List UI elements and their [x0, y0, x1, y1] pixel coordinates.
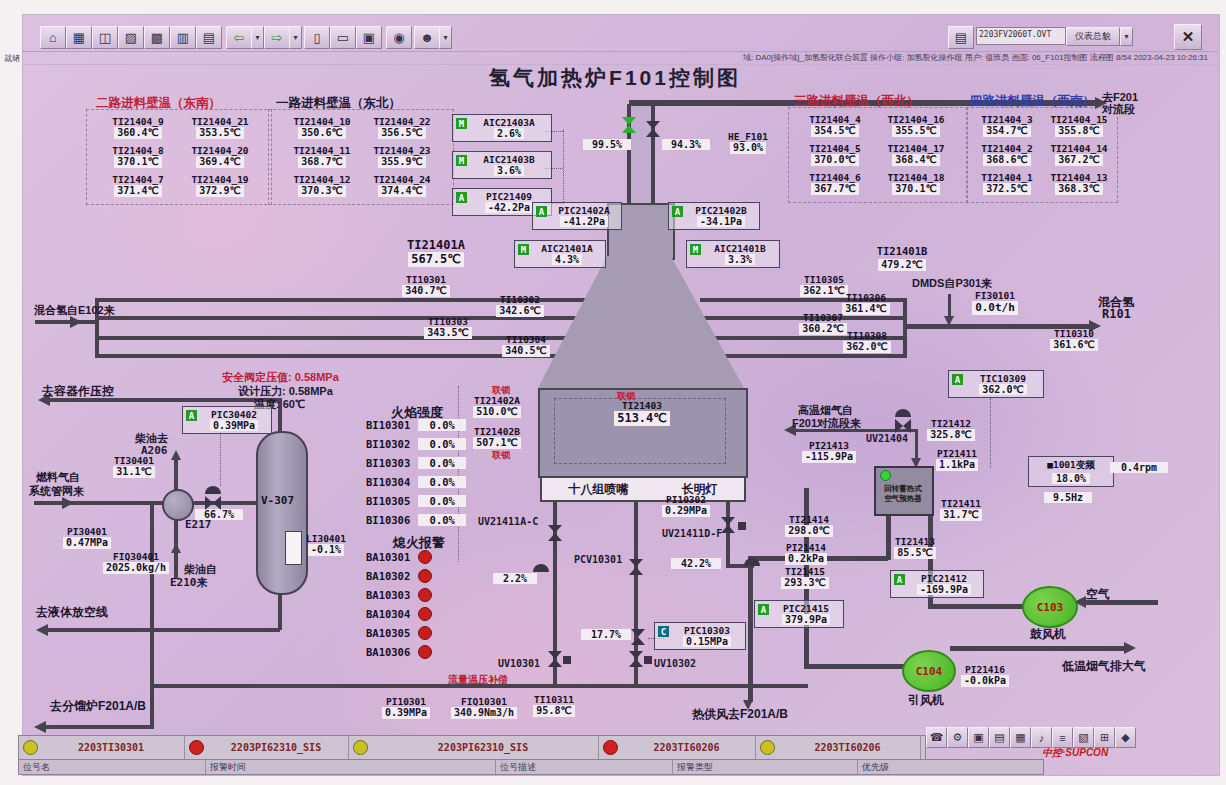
controller-PIC10303[interactable]: CPIC103030.15MPa	[654, 622, 746, 650]
auto-mode-icon: A	[952, 374, 963, 385]
cascade-mode-icon: C	[658, 626, 669, 637]
valve-solenoid	[563, 656, 571, 664]
instrument-PI21414[interactable]: PI214140.2kPa	[776, 542, 836, 565]
instrument-TI10302[interactable]: TI10302342.6℃	[486, 294, 554, 317]
flame-row-BI10305[interactable]: BI103050.0%	[366, 495, 466, 507]
valve-UV21411D-F[interactable]	[721, 517, 735, 533]
uv21404-label: UV21404	[866, 433, 908, 444]
fuel-gas-label-2: 系统管网来	[29, 484, 84, 499]
instrument-TI21404_18[interactable]: TI21404_18370.1℃	[874, 172, 958, 195]
instrument-PI10302[interactable]: PI103020.29MPa	[650, 494, 722, 517]
valve-solenoid	[738, 522, 746, 530]
book-icon[interactable]: ▣	[356, 26, 382, 49]
alarm-indicator	[418, 569, 432, 583]
alarm-level-icon	[353, 740, 368, 755]
panel-dropdown-icon[interactable]: ▾	[1120, 27, 1133, 46]
list-icon[interactable]: ≡	[1052, 727, 1073, 748]
instrument-FIQ30401[interactable]: FIQ304012025.0kg/h	[88, 551, 184, 574]
branch-pipe	[44, 725, 152, 729]
instrument-TI21404_4[interactable]: TI21404_4354.5℃	[796, 114, 874, 137]
uv21411df-label: UV21411D-F	[662, 528, 722, 539]
flue-to-c104	[804, 664, 910, 669]
instrument-TI21404_16[interactable]: TI21404_16355.5℃	[874, 114, 958, 137]
instrument-TI21404_10[interactable]: TI21404_10350.6℃	[280, 116, 364, 139]
grid-icon[interactable]: ⊞	[1094, 727, 1115, 748]
instrument-TI21404_20[interactable]: TI21404_20369.4℃	[178, 145, 262, 168]
group1-header: 一路进料壁温（东北）	[276, 95, 401, 112]
drain-label: 去液体放空线	[36, 604, 108, 621]
interlock-label: 联锁	[492, 449, 510, 462]
valve-UV21404[interactable]	[895, 419, 911, 433]
blower-label: 鼓风机	[1030, 626, 1066, 643]
r101-label: R101	[1102, 307, 1131, 321]
controller-PIC21412[interactable]: APIC21412-169.9Pa	[890, 570, 984, 598]
instrument-TI21404_17[interactable]: TI21404_17368.4℃	[874, 143, 958, 166]
alarm-level-icon	[23, 740, 38, 755]
hot-flue-drop	[915, 429, 918, 459]
instrument-TI10304[interactable]: TI10304340.5℃	[492, 334, 560, 357]
controller-PIC30402[interactable]: APIC304020.39MPa	[182, 406, 272, 434]
instrument-FI30101[interactable]: FI301010.0t/h	[955, 290, 1035, 315]
page-next-icon[interactable]: ▭	[330, 26, 356, 49]
alarm-indicator	[418, 626, 432, 640]
flame-row-BI10301[interactable]: BI103010.0%	[366, 419, 466, 431]
instrument-TI21404_22[interactable]: TI21404_22356.5℃	[360, 116, 444, 139]
media-icon[interactable]: ♪	[1031, 727, 1052, 748]
ready-status: 就绪	[4, 53, 20, 64]
instrument-TI21404_5[interactable]: TI21404_5370.0℃	[796, 143, 874, 166]
controller-AIC21403A[interactable]: MAIC21403A2.6%	[452, 114, 552, 142]
detail-icon[interactable]: ▥	[170, 26, 196, 49]
alarm-row-BA10303[interactable]: BA10303	[366, 588, 432, 602]
dmds-label: DMDS自P301来	[912, 276, 992, 291]
col-description: 位号描述	[496, 760, 673, 774]
instrument-TI21404_7[interactable]: TI21404_7371.4℃	[98, 174, 178, 197]
alarm-level-icon	[189, 740, 204, 755]
instrument-TI30401[interactable]: TI3040131.1℃	[104, 455, 164, 478]
group2-header: 二路进料壁温（东南）	[96, 95, 221, 112]
valve-UV21411A-C[interactable]	[548, 525, 562, 541]
damper-right-output: 94.3%	[662, 139, 710, 150]
screen-icon[interactable]: ▣	[968, 727, 989, 748]
e210-label: E210来	[170, 575, 208, 590]
back-icon[interactable]: ⇦	[226, 26, 252, 49]
window-icon[interactable]: ◫	[92, 26, 118, 49]
col-tagname: 位号名	[19, 760, 206, 774]
burner-label: 十八组喷嘴	[569, 481, 629, 498]
preheater-label: 回转蓄热式空气预热器	[874, 484, 932, 504]
instrument-TI21402B[interactable]: TI21402B507.1℃	[462, 426, 532, 449]
instrument-TI21401B[interactable]: TI21401B479.2℃	[866, 245, 938, 271]
document-field[interactable]: 2203FV2060T.OVT	[976, 27, 1066, 45]
valve-PCV10301[interactable]	[629, 559, 643, 575]
instrument-PI21411[interactable]: PI214111.1kPa	[928, 448, 986, 471]
trend-icon[interactable]: ▨	[118, 26, 144, 49]
pilot-valve[interactable]	[631, 629, 645, 645]
alarm-cell-1[interactable]: 2203TI30301	[19, 736, 185, 759]
controller-AIC21401A[interactable]: MAIC21401A4.3%	[514, 240, 606, 268]
controller-AIC21401B[interactable]: MAIC21401B3.3%	[686, 240, 780, 268]
auto-mode-icon: A	[536, 206, 547, 217]
fuel-control-valve[interactable]	[205, 496, 221, 510]
damper-left-output: 99.5%	[583, 139, 631, 150]
dashed-link	[458, 386, 459, 562]
air-duct-horiz	[928, 604, 1026, 609]
feed-pipe	[35, 320, 97, 324]
alarm-row-BA10305[interactable]: BA10305	[366, 626, 432, 640]
fuel-valve-output: 66.7%	[195, 509, 243, 520]
alarm-banner: 2203TI30301 2203PI62310_SIS 2203PI62310_…	[18, 735, 926, 760]
controller-PIC21402B[interactable]: APIC21402B-34.1Pa	[668, 202, 760, 230]
auto-mode-icon: A	[456, 192, 467, 203]
instrument-HE_F101[interactable]: HE_F10193.0%	[712, 131, 784, 154]
instrument-TI10301[interactable]: TI10301340.7℃	[392, 274, 460, 297]
vfd-frequency: 9.5Hz	[1044, 492, 1092, 503]
page-title: 氢气加热炉F101控制图	[420, 64, 810, 92]
manual-mode-icon: M	[518, 244, 529, 255]
dashed-link	[220, 432, 221, 486]
instrument-TI21404_15[interactable]: TI21404_15355.8℃	[1042, 114, 1116, 137]
drain-riser	[278, 589, 282, 630]
auto-mode-icon: A	[186, 410, 197, 421]
user-menu-icon[interactable]: ▾	[439, 26, 452, 49]
instrument-TI21404_21[interactable]: TI21404_21353.5℃	[178, 116, 262, 139]
group-icon[interactable]: ▩	[144, 26, 170, 49]
instrument-TI21411[interactable]: TI2141131.7℃	[932, 498, 990, 521]
close-icon[interactable]: ✕	[1174, 24, 1202, 50]
dmds-pipe	[948, 294, 951, 318]
group4-header: 四路进料壁温（西南）	[970, 93, 1095, 110]
doc-icon[interactable]: ▧	[1073, 727, 1094, 748]
back-menu-icon[interactable]: ▾	[251, 26, 264, 49]
instrument-TI21412[interactable]: TI21412325.8℃	[920, 418, 982, 441]
to-vessel-label: 去容器作压控	[42, 383, 114, 400]
pcv10301-label: PCV10301	[574, 554, 622, 565]
air-label: 空气	[1086, 586, 1110, 603]
panel-button[interactable]: 仪表总貌	[1066, 27, 1120, 46]
flame-row-BI10303[interactable]: BI103030.0%	[366, 457, 466, 469]
phone-icon[interactable]: ☎	[926, 727, 947, 748]
session-status: 域: DA0[操作域]_加氢裂化联合装置 操作小组: 加氢裂化操作组 用户: 值…	[370, 52, 1208, 63]
instrument-TI21404_2[interactable]: TI21404_2368.6℃	[970, 143, 1044, 166]
instrument-TI21402A[interactable]: TI21402A510.0℃	[462, 395, 532, 418]
instrument-TI10308[interactable]: TI10308362.0℃	[833, 330, 901, 353]
instrument-TI21404_6[interactable]: TI21404_6367.7℃	[796, 172, 874, 195]
report-icon[interactable]: ▤	[196, 26, 222, 49]
branch-riser	[150, 505, 154, 729]
vfd-1001[interactable]: ■1001变频18.0%	[1028, 456, 1114, 487]
alarm-level-icon	[603, 740, 618, 755]
home-icon[interactable]: ⌂	[40, 26, 66, 49]
drain-pipe	[46, 628, 280, 632]
alarm-row-BA10304[interactable]: BA10304	[366, 607, 432, 621]
group3-header: 三路进料壁温（西北）	[794, 93, 919, 110]
instrument-TI21404_24[interactable]: TI21404_24374.4℃	[360, 174, 444, 197]
vessel-V307[interactable]	[256, 431, 308, 595]
instrument-TI21413[interactable]: TI2141385.5℃	[886, 536, 944, 559]
fuel-gas-label-1: 燃料气自	[36, 470, 80, 485]
burner-pipe-3	[726, 498, 730, 568]
alarm-indicator	[418, 607, 432, 621]
instrument-TI21404_11[interactable]: TI21404_11368.7℃	[280, 145, 364, 168]
low-temp-flue-label: 低温烟气排大气	[1062, 658, 1146, 675]
convection-label: 对流段	[1102, 102, 1135, 117]
instrument-FIQ10301[interactable]: FIQ10301340.9Nm3/h	[438, 696, 530, 719]
forward-menu-icon[interactable]: ▾	[289, 26, 302, 49]
uv10302-label: UV10302	[654, 658, 696, 669]
supcon-logo: 中控·SUPCON	[1042, 746, 1108, 760]
auto-mode-icon: A	[672, 206, 683, 217]
controller-PIC21402A[interactable]: APIC21402A-41.2Pa	[532, 202, 622, 230]
col-priority: 优先级	[858, 760, 1038, 774]
controller-TIC10309[interactable]: ATIC10309362.0℃	[948, 370, 1044, 398]
auto-mode-icon: M	[456, 155, 467, 166]
instrument-TI21404_13[interactable]: TI21404_13368.3℃	[1042, 172, 1116, 195]
user-icon[interactable]: ☻	[414, 26, 440, 49]
instrument-PI21416[interactable]: PI21416-0.0kPa	[952, 664, 1018, 687]
instrument-TI21404_19[interactable]: TI21404_19372.9℃	[178, 174, 262, 197]
instrument-TI21404_9[interactable]: TI21404_9360.4℃	[98, 116, 178, 139]
instrument-TI21414[interactable]: TI21414298.0℃	[778, 514, 840, 537]
alarm-indicator	[418, 588, 432, 602]
table-icon[interactable]: ▦	[1010, 727, 1031, 748]
valve-output-17.7: 17.7%	[581, 629, 631, 640]
instrument-TI10310[interactable]: TI10310361.6℃	[1040, 328, 1108, 351]
controller-AIC21403B[interactable]: MAIC21403B3.6%	[452, 151, 552, 179]
valve-output-2.2: 2.2%	[493, 573, 537, 584]
instrument-TI10311[interactable]: TI1031195.8℃	[524, 694, 584, 717]
flame-row-BI10302[interactable]: BI103020.0%	[366, 438, 466, 450]
dashed-link	[563, 130, 564, 204]
forward-icon[interactable]: ⇨	[264, 26, 290, 49]
instrument-TI21404_8[interactable]: TI21404_8370.1℃	[98, 145, 178, 168]
instrument-PI10301[interactable]: PI103010.39MPa	[374, 696, 438, 719]
gear-icon[interactable]: ⚙	[947, 727, 968, 748]
printer-icon[interactable]: ▤	[989, 727, 1010, 748]
instrument-TI21401A[interactable]: TI21401A567.5℃	[396, 238, 476, 267]
instrument-PI21413[interactable]: PI21413-115.9Pa	[794, 440, 864, 463]
alarm-row-BA10306[interactable]: BA10306	[366, 645, 432, 659]
manual-mode-icon: M	[690, 244, 701, 255]
safety-valve-setting: 安全阀定压值: 0.58MPa	[222, 370, 339, 385]
induced-fan-C104[interactable]: C104	[902, 650, 956, 692]
instrument-TI21404_12[interactable]: TI21404_12370.3℃	[280, 174, 364, 197]
dmds-arrow	[944, 316, 954, 326]
vfd-speed: 0.4rpm	[1110, 462, 1168, 473]
exchanger-E217[interactable]	[162, 489, 194, 521]
instrument-TI21404_23[interactable]: TI21404_23355.9℃	[360, 145, 444, 168]
auto-mode-icon: A	[758, 604, 769, 615]
run-status-indicator	[880, 470, 891, 481]
instrument-TI21404_3[interactable]: TI21404_3354.7℃	[970, 114, 1044, 137]
instrument-TI21404_1[interactable]: TI21404_1372.5℃	[970, 172, 1044, 195]
auto-mode-icon: A	[894, 574, 905, 585]
instrument-PI30401[interactable]: PI304010.47MPa	[54, 526, 120, 549]
alarm-row-BA10301[interactable]: BA10301	[366, 550, 432, 564]
drain-arrow	[36, 624, 48, 636]
to-fractionator-label: 去分馏炉F201A/B	[50, 698, 146, 715]
page-prev-icon[interactable]: ▯	[304, 26, 330, 49]
valve-output-42.2: 42.2%	[671, 558, 721, 569]
flow-compensation-label: 流量温压补偿	[448, 673, 508, 687]
uv21411ac-label: UV21411A-C	[478, 516, 538, 527]
damper-valve-left[interactable]	[622, 117, 636, 133]
alarm-indicator	[418, 550, 432, 564]
uv10301-label: UV10301	[498, 658, 540, 669]
valve-solenoid	[644, 656, 652, 664]
search-icon[interactable]: ◉	[386, 26, 412, 49]
stack-pipe-right	[651, 104, 655, 204]
alarm-column-labels: 位号名 报警时间 位号描述 报警类型 优先级	[18, 759, 1044, 775]
controller-PIC21415[interactable]: APIC21415379.9Pa	[754, 600, 844, 628]
stack-out-arrow	[1124, 642, 1136, 654]
hot-air-label: 热供风去F201A/B	[692, 706, 788, 723]
feed-from-e102-label: 混合氢自E102来	[34, 303, 115, 318]
alarm-cell-3[interactable]: 2203PI62310_SIS	[349, 736, 599, 759]
blower-C103[interactable]: C103	[1022, 586, 1078, 628]
col-alarmtime: 报警时间	[206, 760, 496, 774]
hot-flue-label-2: F201对流段来	[792, 416, 861, 431]
valve-UV10302[interactable]	[629, 651, 643, 667]
flame-row-BI10306[interactable]: BI103060.0%	[366, 514, 466, 526]
instrument-TI10303[interactable]: TI10303343.5℃	[414, 316, 482, 339]
instrument-TI21403[interactable]: TI21403513.4℃	[604, 400, 680, 426]
v307-label: V-307	[261, 494, 294, 507]
alarm-cell-2[interactable]: 2203PI62310_SIS	[185, 736, 349, 759]
instrument-LI30401[interactable]: LI30401-0.1%	[296, 533, 356, 556]
diesel-out-arrow	[171, 450, 181, 460]
dashed-link	[990, 398, 991, 468]
flame-row-BI10304[interactable]: BI103040.0%	[366, 476, 466, 488]
auto-mode-icon: M	[456, 118, 467, 129]
hotair-duct-3	[748, 556, 753, 702]
col-alarmtype: 报警类型	[673, 760, 858, 774]
stack-out-pipe	[950, 646, 1126, 651]
instrument-TI21404_14[interactable]: TI21404_14367.2℃	[1042, 143, 1116, 166]
alarm-cell-5[interactable]: 2203TI60206	[756, 736, 921, 759]
alarm-row-BA10302[interactable]: BA10302	[366, 569, 432, 583]
out-pipe-4	[700, 354, 907, 358]
valve-UV10301[interactable]	[548, 651, 562, 667]
alarm-level-icon	[760, 740, 775, 755]
to-fractionator-arrow	[34, 721, 46, 733]
alarm-cell-4[interactable]: 2203TI60206	[599, 736, 756, 759]
alarm-indicator	[418, 645, 432, 659]
induced-fan-label: 引风机	[908, 692, 944, 709]
diamond-icon[interactable]: ◆	[1115, 727, 1136, 748]
overview-icon[interactable]: ▦	[66, 26, 92, 49]
instrument-TI21415[interactable]: TI21415293.3℃	[774, 566, 836, 589]
damper-valve-right[interactable]	[646, 121, 660, 137]
archive-icon[interactable]: ▤	[948, 26, 974, 49]
